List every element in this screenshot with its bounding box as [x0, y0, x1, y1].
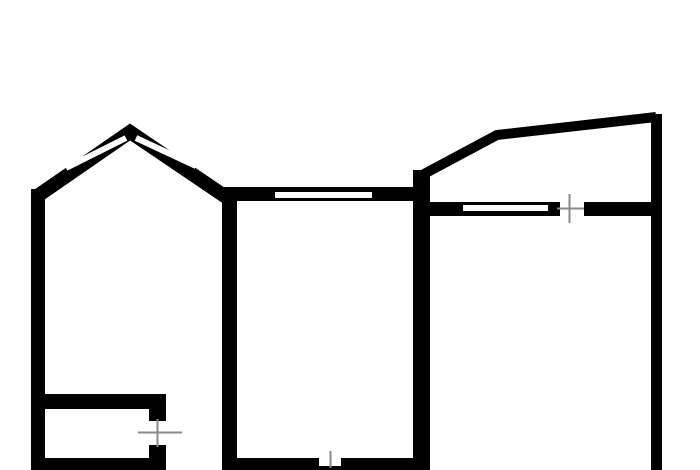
middle-room-window	[275, 192, 372, 198]
right-room-window	[463, 205, 548, 211]
floorplan-page	[0, 0, 700, 470]
floorplan-svg	[0, 0, 700, 470]
right-outer-wall	[651, 114, 662, 470]
bay-window-peaked-wall	[36, 132, 226, 197]
balcony-outline-wall	[424, 117, 656, 174]
center-right-wall	[413, 170, 430, 470]
living-room-divider-wall	[222, 192, 237, 470]
closet-door-jamb-upper	[149, 394, 166, 421]
right-room-top-wall-right	[584, 202, 662, 216]
closet-bottom-wall	[31, 458, 150, 470]
closet-door-jamb-lower	[149, 445, 166, 470]
closet-top-wall	[31, 394, 166, 409]
left-outer-wall	[31, 189, 45, 470]
